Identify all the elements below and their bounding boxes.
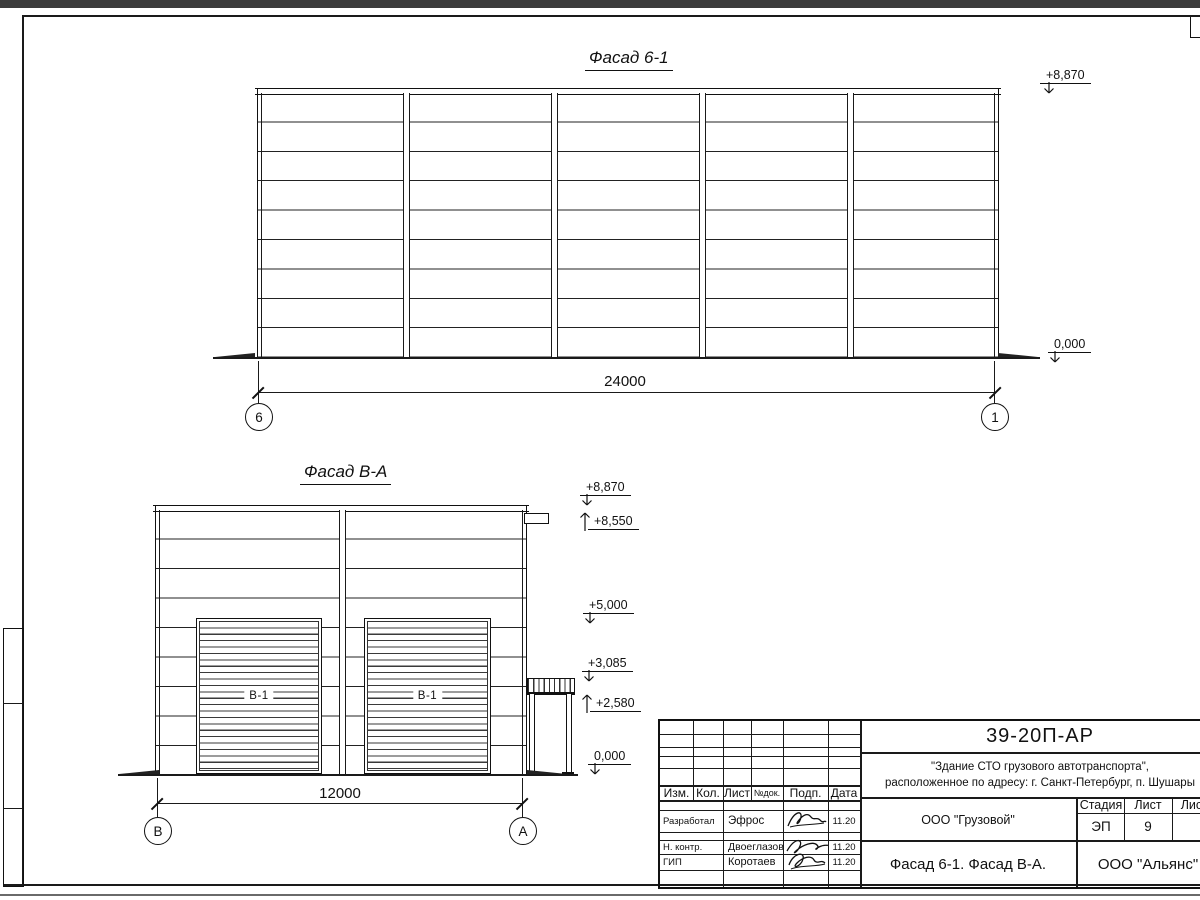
elevation-value: +2,580 <box>590 696 641 712</box>
tb-line <box>660 832 860 833</box>
title-block: Изм. Кол. Лист №док. Подп. Дата Разработ… <box>658 719 1200 889</box>
tb-line <box>660 756 860 757</box>
staff-date: 11.20 <box>828 854 860 870</box>
window-top-edge <box>0 0 1200 8</box>
sheet-label: Лист <box>1124 797 1172 813</box>
drawing-title-cell: Фасад 6-1. Фасад В-А. <box>860 842 1076 887</box>
column-mullion <box>699 93 706 358</box>
canopy-band <box>527 678 575 695</box>
margin-cell-line <box>3 808 22 809</box>
project-line1: "Здание СТО грузового автотранспорта", <box>931 760 1149 776</box>
tb-header-list: Лист <box>723 785 751 800</box>
column-mullion <box>847 93 854 358</box>
dimension-value: 12000 <box>270 785 410 802</box>
staff-name: Двоеглазов <box>725 840 786 854</box>
facade-b-a-drawing: В-1 В-1 <box>155 505 527 775</box>
grade-flare <box>119 770 159 774</box>
corner-stamp-box <box>1190 17 1200 38</box>
elevation-mark: +8,550 <box>588 514 639 530</box>
wall-edge-inner <box>159 510 160 775</box>
sheet-bottom-edge <box>0 894 1200 896</box>
dimension-value: 24000 <box>545 373 705 390</box>
wall-edge-inner <box>261 93 262 358</box>
frame-top <box>22 15 1200 17</box>
elevation-mark: 0,000 <box>588 749 631 765</box>
tb-header-izm: Изм. <box>660 785 693 800</box>
client-name: ООО "Грузовой" <box>860 799 1076 840</box>
dimension-line <box>157 803 523 804</box>
staff-date: 11.20 <box>828 810 860 832</box>
elevation-arrow-down-icon <box>588 763 602 776</box>
sheets-label: Листов <box>1172 797 1200 813</box>
elevation-mark: +5,000 <box>583 598 634 614</box>
elevation-mark: +8,870 <box>580 480 631 496</box>
canopy-post <box>529 694 535 774</box>
elevation-arrow-down-icon <box>580 494 594 507</box>
roller-door: В-1 <box>196 618 322 774</box>
staff-role: ГИП <box>660 854 726 870</box>
extension-line <box>157 778 158 817</box>
stage-value: ЭП <box>1078 814 1124 839</box>
tb-line <box>660 768 860 769</box>
elevation-mark: +8,870 <box>1040 68 1091 84</box>
elevation-mark: 0,000 <box>1048 337 1091 353</box>
column-mullion <box>403 93 410 358</box>
extension-line <box>258 361 259 403</box>
wall-edge-inner <box>522 510 523 775</box>
door-label: В-1 <box>413 690 442 702</box>
roller-door: В-1 <box>364 618 491 774</box>
tb-line <box>660 870 860 871</box>
elevation-arrow-down-icon <box>1048 351 1062 364</box>
tb-line <box>660 734 860 735</box>
ground-line <box>118 774 578 776</box>
elevation-mark: +3,085 <box>582 656 633 672</box>
project-description: "Здание СТО грузового автотранспорта", р… <box>862 756 1200 796</box>
canopy-post <box>566 694 572 774</box>
tb-header-podp: Подп. <box>783 785 828 800</box>
sheet-number: 9 <box>1124 814 1172 839</box>
elevation-arrow-down-icon <box>1042 82 1056 95</box>
facade-6-1-drawing <box>257 88 999 358</box>
extension-line <box>522 778 523 817</box>
elevation-arrow-down-icon <box>582 670 596 683</box>
elevation-arrow-down-icon <box>583 612 597 625</box>
tb-line <box>660 747 860 748</box>
margin-cell-line <box>3 703 22 704</box>
tb-header-kol: Кол. <box>693 785 723 800</box>
staff-role: Разработал <box>660 810 726 832</box>
extension-line <box>994 361 995 403</box>
column-mullion <box>339 510 346 775</box>
wall-panels <box>258 93 998 358</box>
grid-axis-bubble: В <box>144 817 172 845</box>
staff-name: Эфрос <box>725 810 786 832</box>
staff-date: 11.20 <box>828 840 860 854</box>
stage-label: Стадия <box>1078 797 1124 813</box>
elevation-arrow-up-icon <box>580 693 594 713</box>
tb-header-data: Дата <box>828 785 860 800</box>
signature-icon <box>783 835 829 875</box>
document-code: 39-20П-АР <box>860 721 1200 752</box>
elevation-mark: +2,580 <box>590 696 641 712</box>
facade-b-a-title: Фасад В-А <box>300 462 391 485</box>
margin-cells <box>3 628 24 887</box>
wall-edge-inner <box>994 93 995 358</box>
tb-line <box>660 800 860 802</box>
grid-axis-bubble: А <box>509 817 537 845</box>
scupper-pipe <box>524 513 549 524</box>
ground-line <box>213 357 1040 359</box>
elevation-value: +8,550 <box>588 514 639 530</box>
door-label: В-1 <box>244 690 273 702</box>
tb-header-ndok: №док. <box>751 785 783 800</box>
signature-icon <box>784 808 828 832</box>
elevation-arrow-up-icon <box>578 511 592 531</box>
grid-axis-bubble: 6 <box>245 403 273 431</box>
staff-role: Н. контр. <box>660 840 726 854</box>
facade-6-1-title: Фасад 6-1 <box>585 48 673 71</box>
project-line2: расположенное по адресу: г. Санкт-Петерб… <box>885 776 1195 792</box>
dimension-line <box>258 392 995 393</box>
tb-line <box>860 752 1200 754</box>
drawing-sheet: Фасад 6-1 +8,870 0,000 24000 6 1 Фасад В… <box>0 0 1200 900</box>
staff-name: Коротаев <box>725 854 786 870</box>
organization-name: ООО "Альянс" <box>1076 842 1200 887</box>
column-mullion <box>551 93 558 358</box>
grid-axis-bubble: 1 <box>981 403 1009 431</box>
